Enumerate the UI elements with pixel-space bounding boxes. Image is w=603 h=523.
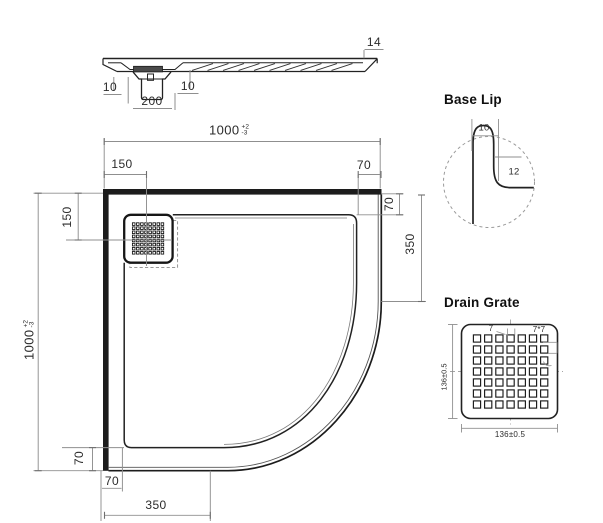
base-lip-dim-width: 10 [479, 123, 490, 133]
drain-grate-dim-hole-pattern: 7*7 [533, 326, 546, 334]
drain-grate-title: Drain Grate [444, 295, 520, 310]
plan-dim-right-radius-offset: 350 [404, 233, 416, 254]
line-work [0, 0, 603, 523]
section-hatching [192, 64, 353, 71]
plan-dim-bottom-left-border: 70 [73, 451, 85, 465]
plan-dim-width-value: 1000 [209, 124, 240, 137]
plan-drain-grate [124, 215, 172, 263]
plan-dim-height-value: 1000 [23, 329, 36, 360]
base-lip-detail [444, 119, 535, 228]
base-lip-profile [473, 126, 534, 225]
plan-dim-drain-from-top: 150 [61, 206, 73, 227]
plan-dim-width: 1000 +2 -3 [209, 124, 249, 137]
plan-dim-height: 1000 +2 -3 [23, 320, 36, 360]
plan-dim-width-tolerance: +2 -3 [242, 124, 249, 136]
section-drain-grate-block [134, 66, 163, 72]
plan-dim-bottom-radius-offset: 350 [145, 499, 166, 511]
plan-dim-top-right-border: 70 [357, 159, 371, 171]
base-lip-title: Base Lip [444, 92, 502, 107]
section-dim-drain-recess: 200 [141, 95, 162, 107]
drain-grate-dim-width: 136±0.5 [495, 431, 525, 439]
plan-wall-left [103, 189, 109, 471]
drain-grate-dim-height: 136±0.5 [440, 363, 448, 390]
section-dim-lip-left: 10 [103, 81, 117, 93]
base-lip-detail-circle [444, 137, 535, 228]
plan-view [103, 189, 382, 471]
plan-dim-width-tol-minus: -3 [242, 130, 249, 136]
plan-dim-height-tolerance: +2 -3 [23, 320, 35, 327]
section-dim-lip-right: 10 [181, 80, 195, 92]
plan-dim-bottom-border: 70 [105, 475, 119, 487]
technical-drawing-shower-tray: 14 10 200 10 1000 +2 -3 1000 +2 -3 150 1… [0, 0, 603, 523]
plan-dim-right-border: 70 [383, 196, 395, 210]
drain-grate-detail [448, 320, 563, 433]
base-lip-dim-height: 12 [509, 167, 520, 177]
plan-dim-drain-from-left: 150 [111, 158, 132, 170]
drain-grate-plate [462, 325, 558, 419]
plan-wall-top [103, 189, 382, 195]
plan-dim-height-tol-minus: -3 [29, 320, 35, 327]
plan-dim-lines [34, 138, 427, 521]
drain-grate-dim-hole-size: 7 [489, 325, 494, 333]
section-dim-edge-thickness: 14 [367, 36, 381, 48]
